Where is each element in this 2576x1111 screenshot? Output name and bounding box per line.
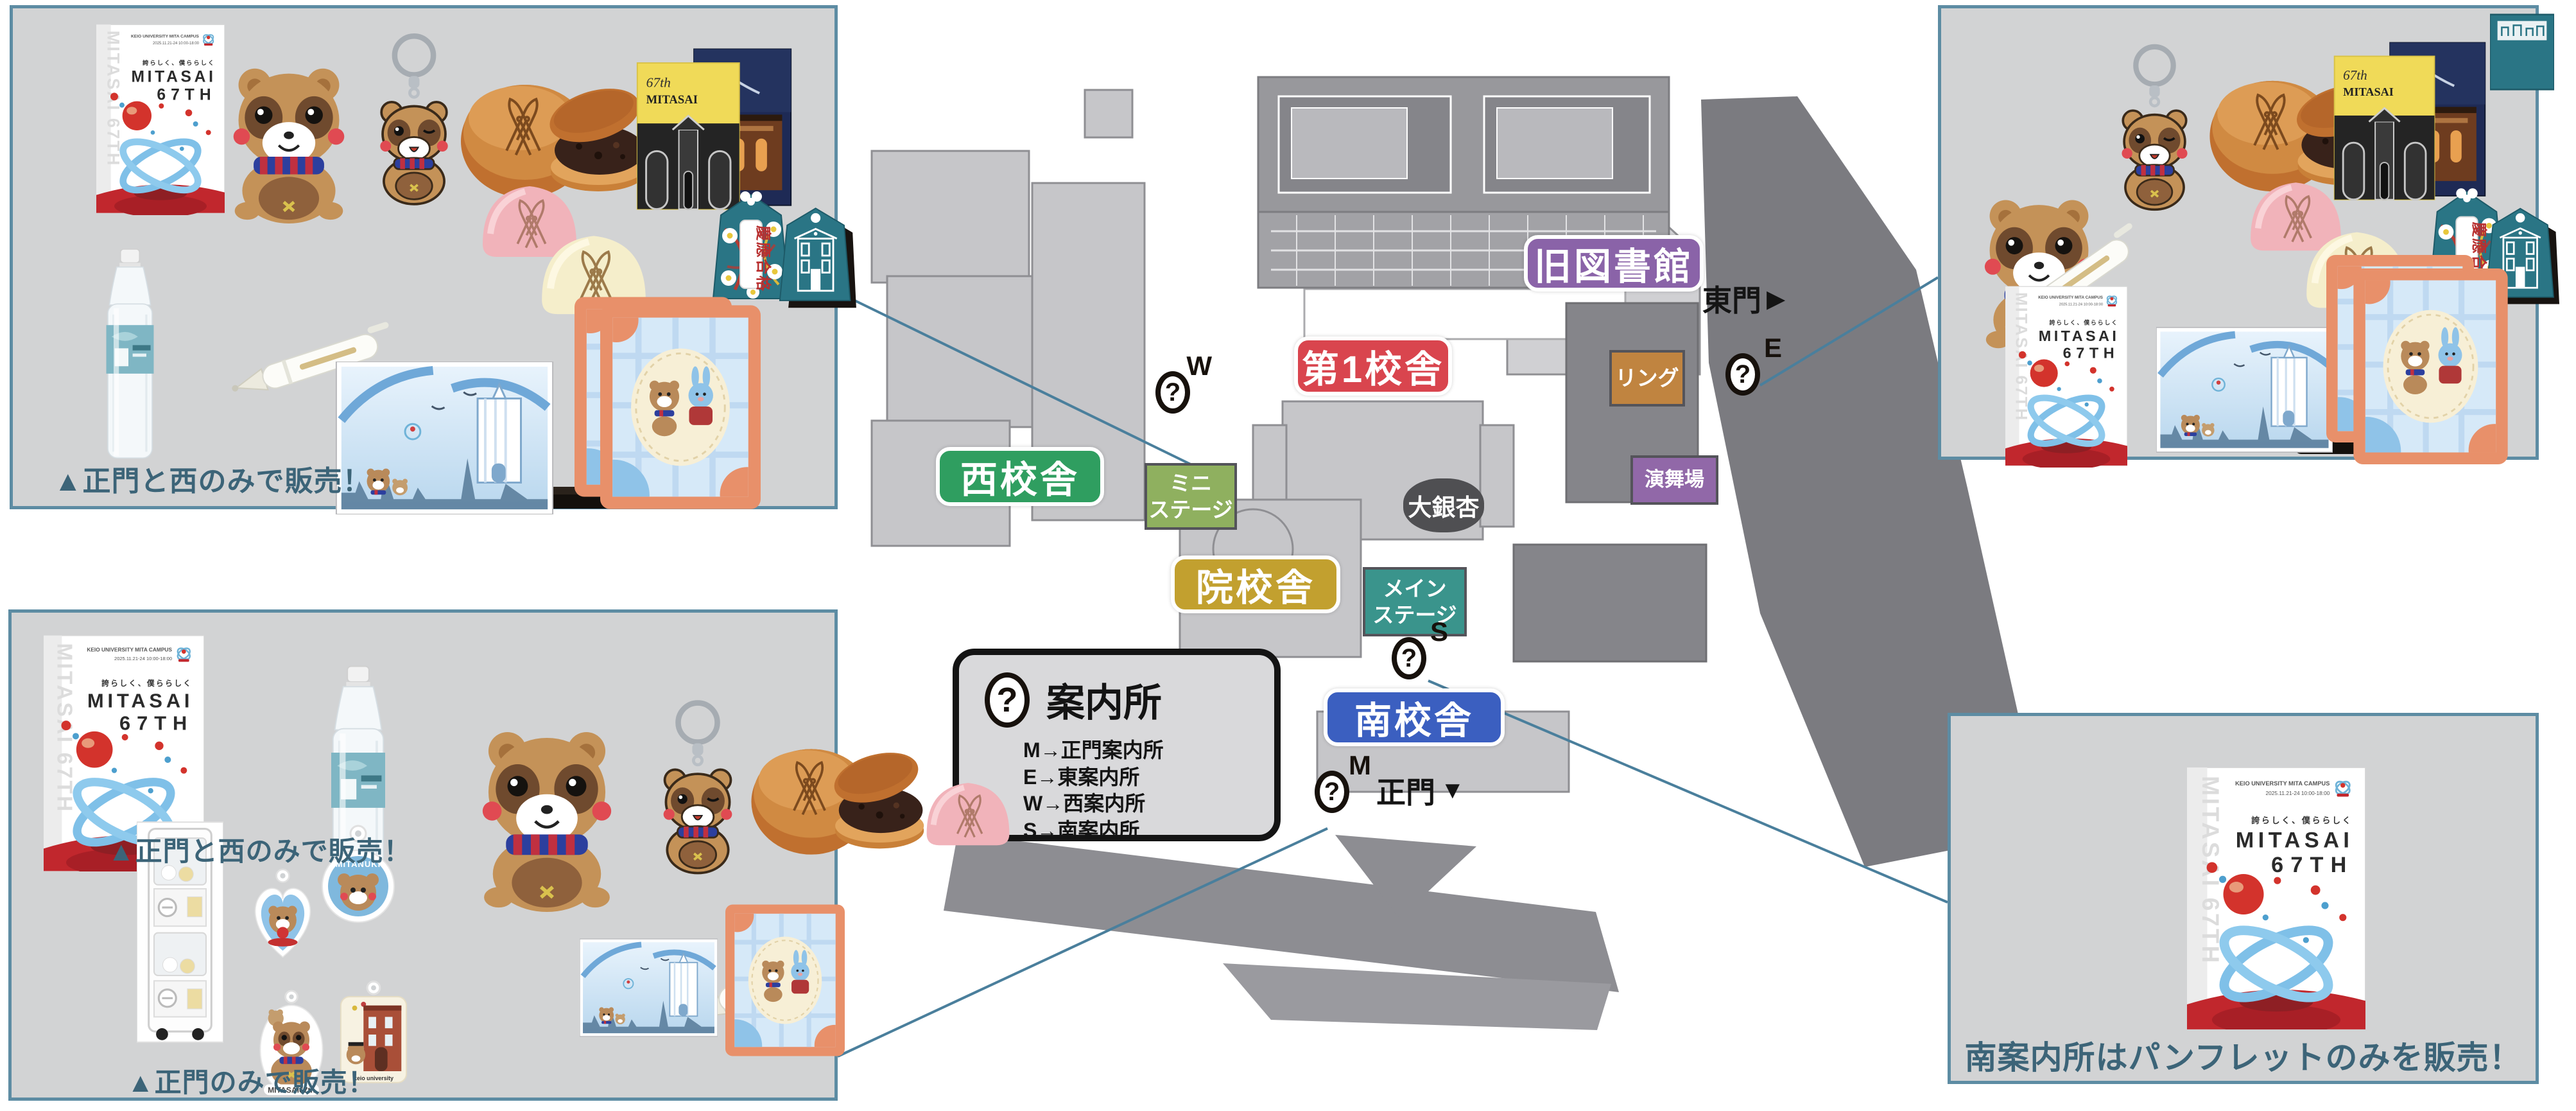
- legend-row-main: M→正門案内所: [1023, 737, 1164, 764]
- legend-row-west: W→西案内所: [1023, 791, 1164, 818]
- caption-sold-main-and-west: ▲正門と西のみで販売！: [108, 830, 411, 869]
- clear-file: [580, 939, 718, 1037]
- label-south-building: 南校舎: [1324, 688, 1505, 746]
- legend-row-south: S→南案内所: [1023, 818, 1164, 844]
- info-point-south-letter: S: [1430, 617, 1448, 647]
- question-glyph: ?: [1324, 778, 1340, 807]
- label-mini-stage: ミニ ステージ: [1145, 463, 1237, 530]
- ring-text: リング: [1616, 365, 1679, 391]
- gate-east-text: 東門: [1702, 277, 1761, 320]
- dorayaki-sweets: [461, 79, 646, 198]
- question-mark-icon: ?: [1155, 371, 1190, 414]
- label-south-building-text: 南校舎: [1354, 690, 1474, 744]
- rubber-keychain: [2122, 47, 2187, 209]
- label-west-building: 西校舎: [936, 447, 1104, 506]
- merch-panel-bottom-left: ▲正門と西のみで販売！ ▲正門のみで販売！: [8, 609, 838, 1101]
- question-glyph: ?: [1401, 644, 1417, 673]
- photo-cards: [637, 49, 791, 209]
- manju-pink: [2251, 182, 2341, 250]
- plush-mascot: [483, 732, 611, 912]
- label-ring: リング: [1609, 350, 1685, 407]
- pamphlet-large: [2187, 767, 2365, 1035]
- ticket-folder-front: [578, 298, 774, 531]
- ginkgo-text: 大銀杏: [1408, 488, 1480, 523]
- legend-title: 案内所: [1046, 672, 1162, 728]
- label-west-building-text: 西校舎: [960, 450, 1080, 503]
- info-point-west-letter: W: [1186, 351, 1212, 381]
- info-point-main: ? M: [1315, 771, 1349, 813]
- caption-south-pamphlet-only: 南案内所はパンフレットのみを販売！: [1951, 1032, 2536, 1078]
- gate-east: 東門▶: [1702, 277, 1785, 320]
- label-enbujo: 演舞場: [1630, 455, 1718, 505]
- mini-stage-line2: ステージ: [1148, 496, 1232, 523]
- mitasai-campus-map-page: 旧図書館 第1校舎 西校舎 院校舎 南校舎 ミニ ステージ メイン ステージ リ…: [0, 0, 2576, 1111]
- question-mark-icon: ?: [1392, 637, 1426, 679]
- legend-header: ? 案内所: [985, 672, 1162, 728]
- rubber-keychain: [380, 36, 447, 204]
- label-main-stage: メイン ステージ: [1363, 567, 1467, 636]
- gate-east-arrow-icon: ▶: [1767, 284, 1785, 313]
- legend-rows: M→正門案内所 E→東案内所 W→西案内所 S→南案内所: [1023, 737, 1164, 844]
- south-roads: [944, 834, 1619, 1030]
- question-glyph: ?: [1735, 360, 1750, 389]
- enbujo-text: 演舞場: [1645, 468, 1704, 493]
- acrylic-charm-heart: [255, 870, 311, 957]
- info-point-main-letter: M: [1349, 750, 1371, 781]
- pamphlet: [96, 24, 225, 217]
- question-mark-icon: ?: [1315, 771, 1349, 813]
- legend-row-east: E→東案内所: [1023, 764, 1164, 791]
- gate-main-text: 正門: [1376, 769, 1435, 812]
- main-stage-line1: メイン: [1383, 575, 1447, 602]
- info-point-east: ? E: [1725, 353, 1760, 396]
- label-ginkgo: 大銀杏: [1403, 478, 1484, 532]
- ticket-folder: [709, 899, 854, 1072]
- legend-question-icon: ?: [985, 672, 1030, 728]
- label-old-library: 旧図書館: [1524, 235, 1704, 292]
- gate-main: 正門▼: [1376, 769, 1465, 812]
- label-building-1-text: 第1校舎: [1302, 339, 1444, 393]
- label-grad-building-text: 院校舎: [1196, 557, 1315, 611]
- label-building-1: 第1校舎: [1294, 337, 1452, 396]
- water-bottle: [107, 249, 154, 458]
- label-grad-building: 院校舎: [1171, 555, 1340, 613]
- info-point-south: ? S: [1392, 637, 1426, 679]
- label-old-library-text: 旧図書館: [1534, 236, 1693, 290]
- ticket-folder-front: [2332, 261, 2521, 486]
- question-glyph: ?: [1165, 378, 1180, 407]
- clear-file: [2156, 328, 2333, 452]
- mini-stage-line1: ミニ: [1170, 470, 1212, 496]
- photo-cards: [2335, 42, 2485, 199]
- merch-panel-top-left: ▲正門と西のみで販売！: [10, 5, 838, 509]
- merch-panel-top-right: [1938, 5, 2539, 460]
- question-glyph: ?: [997, 680, 1018, 720]
- manju-pink: [483, 186, 576, 257]
- question-mark-icon: ?: [1725, 353, 1760, 396]
- gate-main-arrow-icon: ▼: [1440, 777, 1465, 805]
- caption-sold-main-and-west: ▲正門と西のみで販売！: [54, 458, 372, 499]
- pamphlet-panel-bottom-right: 南案内所はパンフレットのみを販売！: [1948, 713, 2539, 1084]
- info-point-west: ? W: [1155, 371, 1190, 414]
- caption-sold-main-only: ▲正門のみで販売！: [127, 1061, 376, 1100]
- pamphlet: [2005, 286, 2127, 469]
- rubber-keychain: [664, 703, 732, 873]
- info-point-east-letter: E: [1764, 333, 1782, 363]
- plush-mascot: [234, 69, 345, 223]
- dorayaki-sweets: [751, 744, 924, 854]
- teal-file: [2490, 15, 2554, 90]
